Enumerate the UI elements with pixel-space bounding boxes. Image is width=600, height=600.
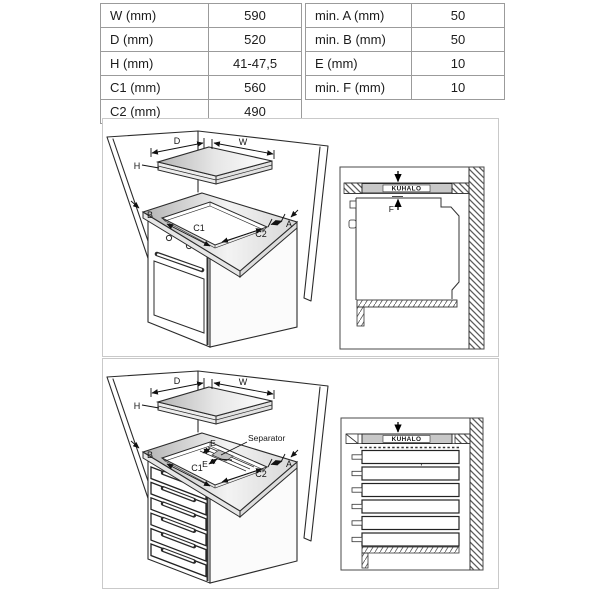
manual-page: W (mm)590 D (mm)520 H (mm)41-47,5 C1 (mm… <box>0 0 600 600</box>
label-d: D <box>174 376 181 386</box>
dim-value: 10 <box>412 76 505 100</box>
dim-label: C1 (mm) <box>101 76 209 100</box>
cross-section-detail-oven: KUHALO F <box>340 167 484 349</box>
dim-label: min. B (mm) <box>306 28 412 52</box>
dim-value: 50 <box>412 28 505 52</box>
dim-label: E (mm) <box>306 52 412 76</box>
diagram-oven-isometric: D W H B A C1 C2 <box>107 131 328 347</box>
label-h: H <box>134 161 141 171</box>
dim-value: 590 <box>209 4 302 28</box>
dim-label: D (mm) <box>101 28 209 52</box>
cross-section-detail-drawers: KUHALO F Separator <box>341 418 483 570</box>
dim-value: 520 <box>209 28 302 52</box>
label-h: H <box>134 401 141 411</box>
installation-diagrams: D W H B A C1 C2 KUHALO F <box>102 118 497 588</box>
table-row: min. A (mm)50 <box>306 4 505 28</box>
dim-value: 41-47,5 <box>209 52 302 76</box>
label-c1: C1 <box>193 223 205 233</box>
table-row: W (mm)590 <box>101 4 302 28</box>
dim-value: 50 <box>412 4 505 28</box>
dimensions-table: W (mm)590 D (mm)520 H (mm)41-47,5 C1 (mm… <box>100 3 505 124</box>
label-b: B <box>147 450 153 460</box>
label-f: F <box>389 204 394 214</box>
label-c2: C2 <box>255 469 267 479</box>
table-row: C1 (mm)560 <box>101 76 302 100</box>
label-w: W <box>239 377 248 387</box>
label-a: A <box>286 219 292 229</box>
table-row: min. B (mm)50 <box>306 28 505 52</box>
table-row: D (mm)520 <box>101 28 302 52</box>
label-a: A <box>286 459 292 469</box>
label-b: B <box>147 210 153 220</box>
label-e1: E <box>210 438 216 448</box>
label-c1: C1 <box>191 463 203 473</box>
wall-hatch <box>469 167 484 349</box>
table-row: H (mm)41-47,5 <box>101 52 302 76</box>
table-row: min. F (mm)10 <box>306 76 505 100</box>
label-e2: E <box>202 459 208 469</box>
label-w: W <box>239 137 248 147</box>
oven-knob <box>166 235 171 240</box>
dim-value: 560 <box>209 76 302 100</box>
table-row: E (mm)10 <box>306 52 505 76</box>
kuhalo-label: KUHALO <box>392 186 422 193</box>
dim-label: W (mm) <box>101 4 209 28</box>
kuhalo-label: KUHALO <box>392 436 422 443</box>
label-c2: C2 <box>255 229 267 239</box>
label-d: D <box>174 136 181 146</box>
dimensions-table-left: W (mm)590 D (mm)520 H (mm)41-47,5 C1 (mm… <box>100 3 302 124</box>
dim-value: 10 <box>412 52 505 76</box>
dim-label: min. A (mm) <box>306 4 412 28</box>
wall-hatch <box>470 418 483 570</box>
dim-label: H (mm) <box>101 52 209 76</box>
dimensions-table-right: min. A (mm)50 min. B (mm)50 E (mm)10 min… <box>305 3 505 100</box>
dim-label: min. F (mm) <box>306 76 412 100</box>
separator-callout: Separator <box>248 433 285 443</box>
diagram-drawers-isometric: D W H B A C1 C2 E E Separator <box>107 371 328 583</box>
